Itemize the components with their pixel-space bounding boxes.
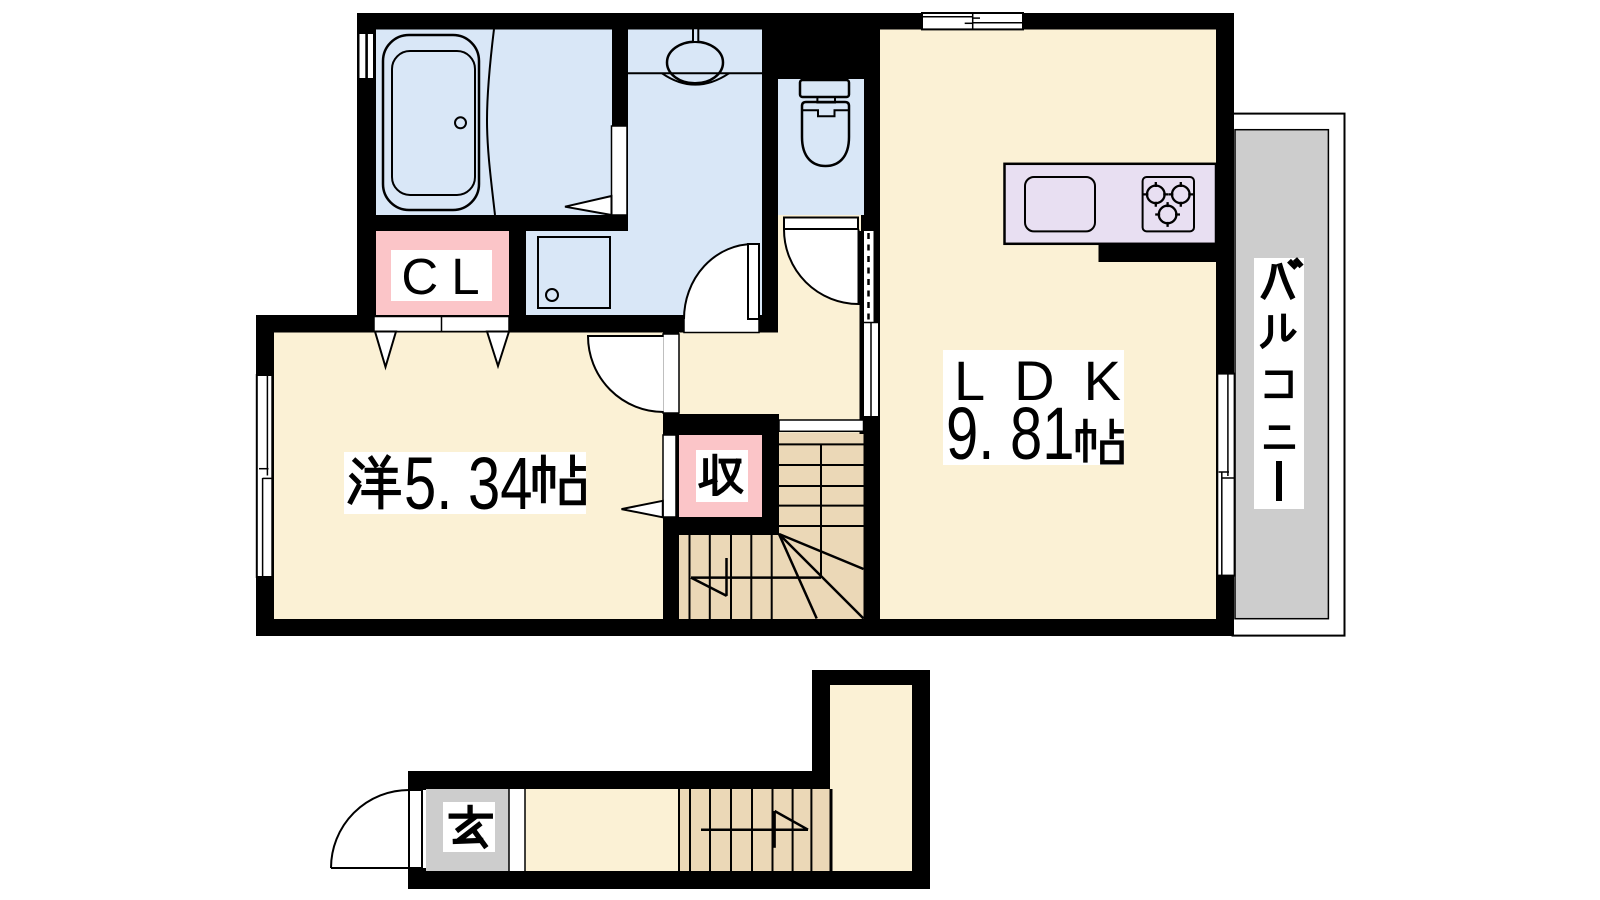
- svg-text:34: 34: [468, 443, 533, 525]
- svg-text:9.: 9.: [946, 393, 994, 475]
- svg-text:5.: 5.: [404, 443, 452, 525]
- svg-text:81: 81: [1010, 393, 1075, 475]
- svg-text:CL: CL: [401, 248, 492, 305]
